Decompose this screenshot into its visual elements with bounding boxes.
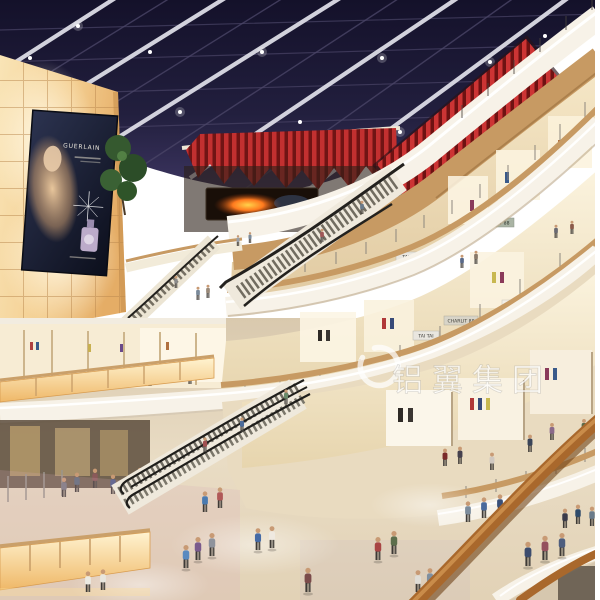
watermark-text: 铝翼集团 [392,363,552,399]
right-margin-strip [595,0,600,600]
rendering-canvas: THEATRES CHARLIT 88 TAI TAI [0,0,600,600]
mall-atrium-rendering: THEATRES CHARLIT 88 TAI TAI [0,0,600,600]
svg-text:TAI TAI: TAI TAI [417,334,433,340]
